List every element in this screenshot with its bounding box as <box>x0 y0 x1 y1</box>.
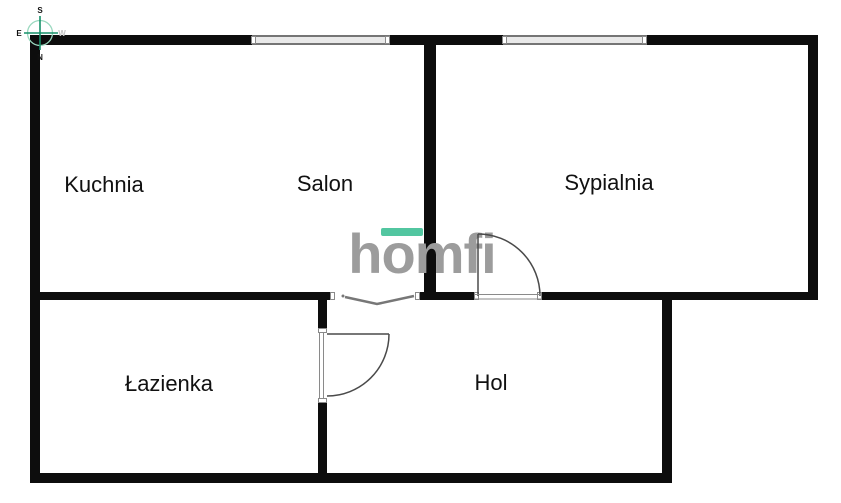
compass-label-north: N <box>37 53 43 62</box>
door-lazienka-threshold <box>320 333 324 398</box>
compass-rose-icon: S N E W <box>10 2 74 66</box>
room-label-hol: Hol <box>474 370 507 396</box>
door-sypialnia <box>478 234 540 296</box>
room-label-kuchnia: Kuchnia <box>64 172 144 198</box>
room-label-lazienka: Łazienka <box>125 371 213 397</box>
door-double-salon-hol <box>342 295 415 305</box>
room-label-salon: Salon <box>297 171 353 197</box>
floor-plan: homfi Kuchnia Salon Sypialnia Łazienka H… <box>0 0 841 503</box>
door-lazienka <box>327 334 389 396</box>
door-sypialnia-threshold <box>475 295 541 300</box>
compass-label-west: W <box>58 29 66 38</box>
doors-overlay <box>0 0 841 503</box>
compass-label-south: S <box>37 6 43 15</box>
compass-label-east: E <box>16 29 22 38</box>
room-label-sypialnia: Sypialnia <box>564 170 653 196</box>
